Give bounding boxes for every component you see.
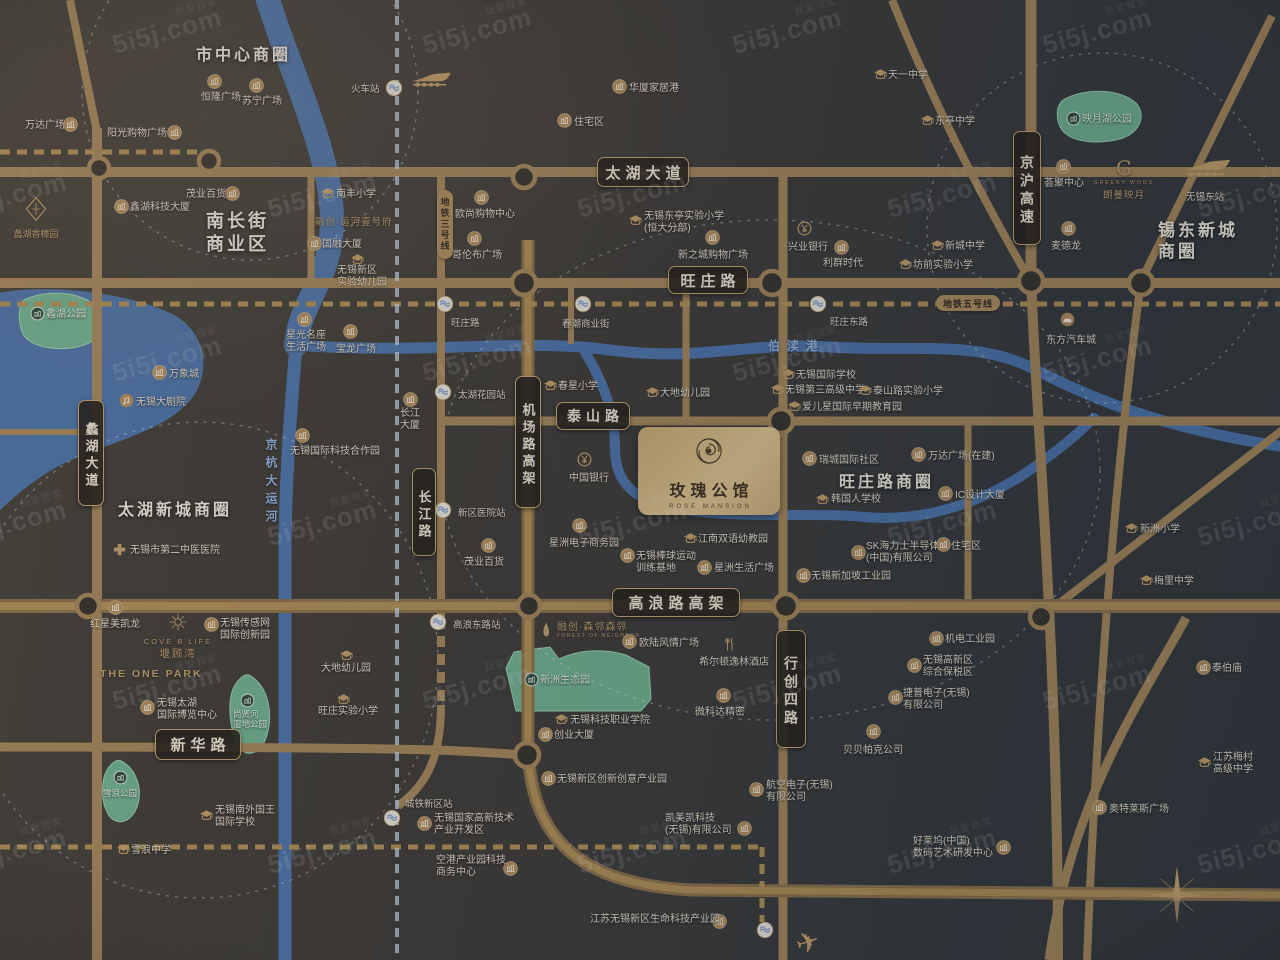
poi-label-line: 无锡新加坡工业园: [811, 571, 891, 583]
bird-logo-icon: [540, 620, 553, 645]
poi-label-line: 无锡棒球运动: [636, 551, 696, 563]
poi-label-line: 新之城购物广场: [678, 250, 748, 262]
poi-label: 兴业银行: [788, 242, 828, 254]
metro-line-label: 地铁三号线: [437, 190, 453, 259]
building-icon: [716, 688, 731, 703]
poi-label-line: 星洲生活广场: [714, 563, 774, 575]
building-icon: [929, 631, 944, 646]
poi-label-line: 无锡国际学校: [796, 370, 856, 382]
district-title: 南长街商业区: [206, 210, 269, 255]
poi-label: 苏宁广场: [242, 96, 282, 108]
building-icon: [225, 186, 240, 201]
building-icon: [612, 79, 627, 94]
poi-label: 无锡东亭实验小学(恒大分部): [644, 211, 724, 234]
poi-label: 捷普电子(无锡)有限公司: [903, 688, 970, 711]
poi-label: 万象城: [169, 369, 199, 381]
poi-label-line: 国际博览中心: [157, 710, 217, 722]
building-icon: [936, 537, 951, 552]
building-icon: [417, 816, 432, 831]
logo-yunhe: 融创·运河壹号府: [315, 214, 393, 228]
poi-label-line: 阳光购物广场: [107, 128, 167, 140]
building-icon: [114, 199, 129, 214]
district-title-line: 商业区: [206, 233, 269, 256]
poi-label: 映月湖公园: [1082, 114, 1132, 126]
station-label: 春潮商业街: [562, 316, 610, 330]
poi-label-line: 湿地公园: [233, 720, 267, 730]
poi-label-line: 江南双语幼教园: [698, 534, 768, 546]
poi-label: 好莱坞(中国)数码艺术研发中心: [913, 836, 993, 859]
poi-label: 奥特莱斯广场: [1109, 804, 1169, 816]
school-icon: [543, 378, 558, 393]
school-icon: [336, 692, 351, 707]
poi-label-line: 无锡国家高新技术: [434, 813, 514, 825]
road-label: 机场路高架: [515, 376, 541, 508]
road-label: 太湖大道: [597, 157, 689, 187]
poi-label: 住宅区: [574, 117, 604, 129]
park-icon: [524, 672, 539, 687]
school-icon: [199, 808, 214, 823]
poi-label: 新之城购物广场: [678, 250, 748, 262]
poi-label: 天一中学: [888, 70, 928, 82]
poi-label-line: 大厦: [400, 420, 420, 432]
poi-label: 瑞城国际社区: [819, 455, 879, 467]
poi-label-line: 利群时代: [823, 258, 863, 270]
poi-label: 江苏无锡新区生命科技产业园: [590, 914, 720, 926]
poi-label: 韩国人学校: [831, 494, 881, 506]
poi-label-line: 兴业银行: [788, 242, 828, 254]
poi-label-line: 创业大厦: [554, 730, 594, 742]
metro-station-icon: [809, 295, 827, 313]
plane-icon: ✈: [791, 923, 824, 960]
poi-label: 东方汽车城: [1046, 335, 1096, 347]
poi-label: 星洲生活广场: [714, 563, 774, 575]
park-icon: [240, 693, 255, 708]
poi-label: 国融大厦: [322, 239, 362, 251]
district-title: 旺庄路商圈: [839, 473, 934, 493]
poi-label: 春星小学: [558, 381, 598, 393]
building-icon: [207, 74, 222, 89]
district-title-line: 市中心商圈: [196, 46, 291, 66]
poi-label: 凯美凯科技(无锡)有限公司: [665, 813, 732, 836]
poi-label-line: 万象城: [169, 369, 199, 381]
school-icon: [683, 531, 698, 546]
poi-label: 无锡新区实验幼儿园: [337, 265, 387, 288]
building-icon: [737, 821, 752, 836]
poi-label-line: 雪浪公园: [103, 789, 137, 799]
poi-label-line: 国际学校: [215, 817, 275, 829]
poi-label: 星洲电子商务园: [549, 538, 619, 550]
poi-label: 无锡棒球运动训练基地: [636, 551, 696, 574]
poi-label-line: 大地幼儿园: [660, 388, 710, 400]
school-icon: [645, 385, 660, 400]
poi-label-line: 茂业百货: [186, 189, 226, 201]
logo-label-cn: 融创·森邻森邻: [557, 618, 641, 633]
poi-label: 无锡太湖国际博览中心: [157, 698, 217, 721]
poi-label: 无锡第三高级中学: [785, 385, 865, 397]
building-icon: [620, 548, 635, 563]
river-label: 京杭大运河: [263, 438, 280, 528]
poi-label-line: 华厦家居港: [629, 83, 679, 95]
poi-label-line: 欧陆风情广场: [639, 638, 699, 650]
poi-label-line: 无锡大剧院: [136, 397, 186, 409]
poi-label: 南丰小学: [336, 189, 376, 201]
poi-label-line: 生活广场: [286, 342, 326, 354]
poi-label: 无锡新加坡工业园: [811, 571, 891, 583]
school-icon: [873, 67, 888, 82]
metro-line-label: 地铁五号线: [936, 295, 1000, 311]
poi-label: 华厦家居港: [629, 83, 679, 95]
building-icon: [249, 78, 264, 93]
building-icon: [307, 236, 322, 251]
poi-label-line: 鑫湖科技大厦: [130, 202, 190, 214]
building-icon: [802, 451, 817, 466]
poi-label-line: 蠡湖公园: [46, 309, 86, 321]
poi-label-line: 万达广场: [25, 120, 65, 132]
metro-station-icon: [429, 613, 447, 631]
station-label: 高浪东路站: [453, 617, 501, 631]
poi-label: 无锡国际学校: [796, 370, 856, 382]
logo-greeny-wood: G GREENY WOOD 朗曼映月: [1092, 156, 1156, 201]
poi-label-line: 有限公司: [903, 700, 970, 712]
poi-label-line: IC设计大厦: [955, 490, 1005, 502]
poi-label: 新洲小学: [1140, 524, 1180, 536]
poi-label-line: 无锡科技职业学院: [570, 715, 650, 727]
road-label: 新华路: [155, 729, 241, 760]
school-icon: [320, 186, 335, 201]
school-icon: [628, 213, 643, 228]
station-label: 旺庄东路: [830, 314, 868, 328]
poi-label-line: 无锡新区创新创意产业园: [557, 774, 667, 786]
poi-label-line: 星光名座: [286, 330, 326, 342]
road-label: 泰山路: [556, 402, 630, 430]
poi-label: 大地幼儿园: [660, 388, 710, 400]
poi-label-line: (中国)有限公司: [866, 553, 939, 565]
poi-label: 中国银行: [569, 473, 609, 485]
building-icon: [796, 568, 811, 583]
building-icon: [481, 538, 496, 553]
poi-label: 贝贝帕克公司: [843, 745, 903, 757]
logo-letter: G: [1092, 156, 1156, 180]
road-label: 旺庄路: [668, 266, 748, 294]
poi-label-line: 星洲电子商务园: [549, 538, 619, 550]
poi-label-line: 泰伯庙: [1212, 663, 1242, 675]
poi-label-line: 苏宁广场: [242, 96, 282, 108]
place-label-text: 无锡东站: [1186, 189, 1224, 203]
road-label: 京沪高速: [1013, 131, 1041, 245]
poi-label: 尚贤河湿地公园: [233, 710, 267, 729]
station-label: 太湖花园站: [458, 387, 506, 401]
building-icon: [295, 428, 310, 443]
metro-station-icon: [574, 295, 592, 313]
road-label: 高浪路高架: [612, 588, 740, 617]
poi-label: 雪浪中学: [131, 845, 171, 857]
school-icon: [1124, 521, 1139, 536]
poi-label-line: (恒大分部): [644, 223, 724, 235]
poi-label-line: SK海力士半导体: [866, 541, 939, 553]
road-label: 行创四路: [776, 630, 806, 748]
station-label: 旺庄路: [451, 315, 480, 329]
theater-icon: [119, 393, 134, 408]
poi-label-line: 麦德龙: [1051, 241, 1081, 253]
poi-label-line: 梅里中学: [1154, 576, 1194, 588]
building-icon: [866, 724, 881, 739]
car-icon: [1060, 312, 1075, 327]
poi-label: 机电工业园: [945, 634, 995, 646]
poi-label: 茂业百货: [464, 557, 504, 569]
poi-label-line: 映月湖公园: [1082, 114, 1132, 126]
metro-station-icon: [756, 921, 774, 939]
station-label: 城铁新区站: [405, 796, 453, 810]
road-label: 蠡湖大道: [78, 400, 104, 506]
building-icon: [152, 365, 167, 380]
poi-label-line: 国际创新园: [220, 630, 270, 642]
building-icon: [63, 117, 78, 132]
poi-label-line: 奥特莱斯广场: [1109, 804, 1169, 816]
park-icon: [30, 306, 45, 321]
building-icon: [911, 447, 926, 462]
poi-label-line: 旺庄实验小学: [318, 706, 378, 718]
poi-label-line: 长江: [400, 408, 420, 420]
school-icon: [898, 257, 913, 272]
poi-label: 新洲生态园: [540, 675, 590, 687]
school-icon: [920, 113, 935, 128]
building-icon: [1196, 660, 1211, 675]
compass-star-icon: [1148, 866, 1206, 929]
poi-label-line: 机电工业园: [945, 634, 995, 646]
poi-label: 泰山路实验小学: [873, 386, 943, 398]
building-icon: [403, 392, 418, 407]
poi-label-line: 欧尚购物中心: [455, 209, 515, 221]
building-icon: [204, 617, 219, 632]
poi-label-line: 无锡新区: [337, 265, 387, 277]
building-icon: [108, 600, 123, 615]
poi-label-line: 大地幼儿园: [321, 663, 371, 675]
poi-label-line: 爱儿星国际早期教育园: [802, 402, 902, 414]
poi-label: 麦德龙: [1051, 241, 1081, 253]
poi-label-line: 空港产业园科技: [436, 855, 506, 867]
poi-label: 恒隆广场: [201, 92, 241, 104]
poi-label: 无锡国际科技合作园: [290, 446, 380, 458]
metro-station-icon: [436, 295, 454, 313]
poi-label-line: 住宅区: [951, 541, 981, 553]
bank-icon: [797, 221, 812, 236]
poi-label: 大地幼儿园: [321, 663, 371, 675]
building-icon: [938, 486, 953, 501]
metro-station-icon: [385, 79, 403, 97]
poi-label-line: 高级中学: [1213, 764, 1253, 776]
building-icon: [622, 634, 637, 649]
building-icon: [557, 113, 572, 128]
building-icon: [167, 125, 182, 140]
poi-label: 旺庄实验小学: [318, 706, 378, 718]
poi-label: 创业大厦: [554, 730, 594, 742]
metro-station-icon: [434, 501, 452, 519]
logo-label: 蠡湖香樟园: [4, 227, 68, 240]
poi-label: 长江大厦: [400, 408, 420, 431]
school-icon: [930, 238, 945, 253]
building-icon: [1056, 159, 1071, 174]
poi-label: 空港产业园科技商务中心: [436, 855, 506, 878]
poi-label-line: 无锡国际科技合作园: [290, 446, 380, 458]
poi-label: 东亭中学: [935, 116, 975, 128]
poi-label-line: 江苏无锡新区生命科技产业园: [590, 914, 720, 926]
building-icon: [749, 782, 764, 797]
poi-label-line: 红星美凯龙: [90, 619, 140, 631]
poi-label-line: 南丰小学: [336, 189, 376, 201]
poi-label-line: 贝贝帕克公司: [843, 745, 903, 757]
school-icon: [781, 367, 796, 382]
park-icon: [1066, 111, 1081, 126]
building-icon: [541, 771, 556, 786]
poi-label-line: 综合保税区: [923, 667, 973, 679]
logo-label-en: GREENY WOOD: [1092, 180, 1156, 186]
poi-label: 泰伯庙: [1212, 663, 1242, 675]
poi-label-line: 凯美凯科技: [665, 813, 732, 825]
poi-label: 爱儿星国际早期教育园: [802, 402, 902, 414]
train-icon: [410, 64, 454, 95]
poi-label: 无锡南外国王国际学校: [215, 805, 275, 828]
poi-label: 江南双语幼教园: [698, 534, 768, 546]
poi-label: 星光名座生活广场: [286, 330, 326, 353]
poi-label-line: 天一中学: [888, 70, 928, 82]
metro-station-icon: [383, 809, 401, 827]
district-title-line: 旺庄路商圈: [839, 473, 934, 493]
poi-label: 欧陆风情广场: [639, 638, 699, 650]
poi-label-line: 微科达精密: [695, 707, 745, 719]
poi-label-line: 住宅区: [574, 117, 604, 129]
poi-label: 欧尚购物中心: [455, 209, 515, 221]
poi-label-line: 无锡第三高级中学: [785, 385, 865, 397]
park-icon: [113, 770, 128, 785]
poi-label: 希尔顿逸林酒店: [699, 657, 769, 669]
train-icon: [1182, 150, 1234, 185]
poi-label: 航空电子(无锡)有限公司: [766, 780, 833, 803]
flower-logo-icon: [168, 619, 188, 636]
poi-label-line: 泰山路实验小学: [873, 386, 943, 398]
school-icon: [116, 842, 131, 857]
school-icon: [554, 712, 569, 727]
project-marker: 玫瑰公馆 ROSE MANSION: [638, 427, 780, 515]
poi-label: 蠡湖公园: [46, 309, 86, 321]
river-label: 伯渎港: [768, 337, 825, 354]
poi-label-line: 宝龙广场: [336, 344, 376, 356]
poi-label-line: 商务中心: [436, 867, 506, 879]
poi-label: 无锡市第二中医医院: [130, 545, 220, 557]
poi-label-line: 无锡高新区: [923, 655, 973, 667]
hospital-icon: [112, 542, 127, 557]
poi-label-line: 新洲小学: [1140, 524, 1180, 536]
logo-onepark: THE ONE PARK: [100, 668, 203, 680]
poi-label-line: 无锡太湖: [157, 698, 217, 710]
poi-label-line: 好莱坞(中国): [913, 836, 993, 848]
poi-label-line: 瑞城国际社区: [819, 455, 879, 467]
poi-label-line: 无锡市第二中医医院: [130, 545, 220, 557]
poi-label: 宝龙广场: [336, 344, 376, 356]
building-icon: [467, 231, 482, 246]
building-icon: [907, 658, 922, 673]
poi-label: 万达广场(在建): [928, 451, 995, 463]
building-icon: [343, 324, 358, 339]
school-icon: [339, 648, 354, 663]
poi-label-line: 东方汽车城: [1046, 335, 1096, 347]
poi-label-line: 万达广场(在建): [928, 451, 995, 463]
poi-label: 红星美凯龙: [90, 619, 140, 631]
district-title-line: 太湖新城商圈: [118, 501, 232, 521]
poi-label-line: 产业开发区: [434, 825, 514, 837]
school-icon: [1197, 755, 1212, 770]
logo-label-cn: 堰顾湾: [138, 646, 218, 661]
poi-label-line: 雪浪中学: [131, 845, 171, 857]
school-icon: [815, 492, 830, 507]
poi-label: 江苏梅村高级中学: [1213, 752, 1253, 775]
logo-label-en: COVE B LIFE: [138, 637, 218, 646]
district-title: 市中心商圈: [196, 46, 291, 66]
metro-station-icon: [434, 383, 452, 401]
road-label: 长江路: [412, 468, 436, 556]
building-icon: [572, 518, 587, 533]
poi-label-line: 无锡南外国王: [215, 805, 275, 817]
logo-xiangzhangyuan: 蠡湖香樟园: [4, 196, 68, 240]
district-title: 太湖新城商圈: [118, 501, 232, 521]
poi-label-line: 中国银行: [569, 473, 609, 485]
poi-label-line: 无锡东亭实验小学: [644, 211, 724, 223]
poi-label-line: 韩国人学校: [831, 494, 881, 506]
building-icon: [474, 190, 489, 205]
poi-label-line: 恒隆广场: [201, 92, 241, 104]
building-icon: [996, 840, 1011, 855]
poi-label-line: 有限公司: [766, 792, 833, 804]
poi-label: 无锡高新区综合保税区: [923, 655, 973, 678]
poi-label-line: 茂业百货: [464, 557, 504, 569]
poi-label: 无锡大剧院: [136, 397, 186, 409]
poi-label: 哥伦布广场: [452, 250, 502, 262]
building-icon: [1092, 800, 1107, 815]
logo-label-cn: 朗曼映月: [1092, 187, 1156, 201]
building-icon: [1061, 221, 1076, 236]
poi-label-line: 捷普电子(无锡): [903, 688, 970, 700]
poi-label: SK海力士半导体(中国)有限公司: [866, 541, 939, 564]
school-icon: [787, 399, 802, 414]
poi-label-line: 航空电子(无锡): [766, 780, 833, 792]
building-icon: [297, 312, 312, 327]
building-icon: [888, 690, 903, 705]
poi-label-line: 实验幼儿园: [337, 277, 387, 289]
poi-label-line: (无锡)有限公司: [665, 825, 732, 837]
building-icon: [140, 700, 155, 715]
district-title-line: 商圈: [1158, 241, 1238, 262]
poi-label: 微科达精密: [695, 707, 745, 719]
poi-label-line: 训练基地: [636, 563, 696, 575]
poi-label: 茂业百货: [186, 189, 226, 201]
poi-label: 阳光购物广场: [107, 128, 167, 140]
school-icon: [858, 383, 873, 398]
poi-label: IC设计大厦: [955, 490, 1005, 502]
school-icon: [1139, 573, 1154, 588]
poi-label: 万达广场: [25, 120, 65, 132]
district-title: 锡东新城商圈: [1158, 220, 1238, 263]
location-map-photo: 玫瑰公馆 ROSE MANSION 蠡湖香樟园 融创·运河壹号府 COVE B …: [0, 0, 1280, 960]
poi-label: 新城中学: [945, 241, 985, 253]
poi-label-line: 东亭中学: [935, 116, 975, 128]
poi-label-line: 坊前实验小学: [913, 260, 973, 272]
district-title-line: 南长街: [206, 210, 269, 233]
poi-label-line: 荟聚中心: [1044, 178, 1084, 190]
station-label: 新区医院站: [458, 505, 506, 519]
poi-label-line: 哥伦布广场: [452, 250, 502, 262]
poi-label: 无锡国家高新技术产业开发区: [434, 813, 514, 836]
building-icon: [834, 240, 849, 255]
building-icon: [538, 727, 553, 742]
